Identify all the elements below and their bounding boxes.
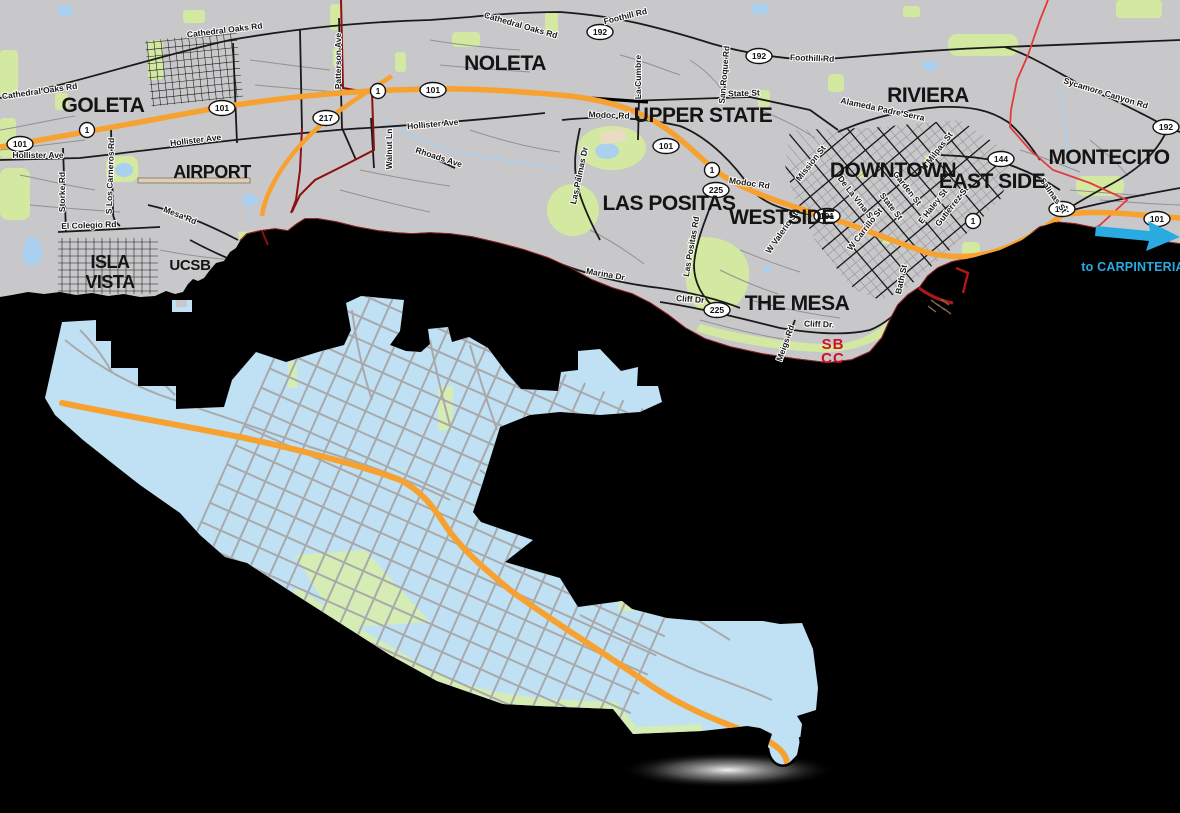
route-shield: 192 <box>587 25 613 40</box>
route-shield-number: 192 <box>593 27 607 37</box>
inset-shadow <box>620 752 836 788</box>
neighborhood-label-westside: WESTSIDE <box>729 206 835 229</box>
road-label: Walnut Ln <box>384 129 394 170</box>
route-shield-number: 192 <box>1159 122 1173 132</box>
route-shield-number: 1 <box>85 125 90 135</box>
route-shield: 1 <box>966 214 981 229</box>
route-shield: 101 <box>209 101 235 116</box>
neighborhood-label-east-side: EAST SIDE <box>939 170 1046 193</box>
road-label: Patterson Ave <box>333 32 343 89</box>
road-label: Cliff Dr <box>676 293 706 305</box>
route-shield: 101 <box>420 83 446 98</box>
neighborhood-label-the-mesa: THE MESA <box>745 292 850 315</box>
santa-barbara-area-map: 101 1 101 217 1 101 192 192 101 1 225 22… <box>0 0 1180 813</box>
inset-fragment-gray <box>176 300 187 307</box>
route-shield: 217 <box>313 111 339 126</box>
neighborhood-label-goleta: GOLETA <box>62 94 145 117</box>
route-shield: 192 <box>746 49 772 64</box>
route-shield: 144 <box>988 152 1014 167</box>
neighborhood-label-ucsb: UCSB <box>169 257 211 274</box>
route-shield-number: 1 <box>971 216 976 226</box>
route-shield-number: 217 <box>319 113 333 123</box>
route-shield-number: 101 <box>659 141 673 151</box>
route-shield: 1 <box>705 163 720 178</box>
carpinteria-label: to CARPINTERIA <box>1081 260 1180 274</box>
route-shield-number: 144 <box>994 154 1008 164</box>
road-label: State St <box>728 87 760 98</box>
route-shield-number: 101 <box>13 139 27 149</box>
neighborhood-label-montecito: MONTECITO <box>1048 146 1169 169</box>
route-shield: 225 <box>704 303 730 318</box>
route-shield: 192 <box>1153 120 1179 135</box>
road-label: Cliff Dr. <box>804 318 835 329</box>
neighborhood-label-las-positas: LAS POSITAS <box>603 192 736 215</box>
route-shield-number: 1 <box>376 86 381 96</box>
road-label: Foothill Rd <box>790 52 835 64</box>
route-shield-number: 192 <box>752 51 766 61</box>
neighborhood-label-noleta: NOLETA <box>464 52 546 75</box>
route-shield: 1 <box>371 84 386 99</box>
route-shield: 1 <box>80 123 95 138</box>
map-canvas: 101 1 101 217 1 101 192 192 101 1 225 22… <box>0 0 1180 813</box>
neighborhood-label-riviera: RIVIERA <box>887 84 969 107</box>
neighborhood-label-downtown: DOWNTOWN <box>830 159 956 182</box>
road-label: La Cumbre <box>633 55 643 100</box>
route-shield: 101 <box>653 139 679 154</box>
neighborhood-label-upper-state: UPPER STATE <box>634 104 773 127</box>
neighborhood-label-isla-vista: VISTA <box>85 272 135 292</box>
route-shield-number: 1 <box>710 165 715 175</box>
route-shield-number: 101 <box>426 85 440 95</box>
road-label: Modoc Rd <box>588 109 629 120</box>
route-shield-number: 101 <box>215 103 229 113</box>
neighborhood-label-airport: AIRPORT <box>173 162 251 182</box>
road-label: El Colegio Rd <box>61 219 117 231</box>
road-label: Hollister Ave <box>12 150 64 160</box>
road-label: Storke Rd <box>57 172 67 212</box>
route-shield: 101 <box>1144 212 1170 227</box>
neighborhood-label-isla-vista: ISLA <box>90 252 130 272</box>
route-shield-number: 101 <box>1150 214 1164 224</box>
route-shield-number: 225 <box>710 305 724 315</box>
sbcc-label: CC <box>821 350 845 367</box>
